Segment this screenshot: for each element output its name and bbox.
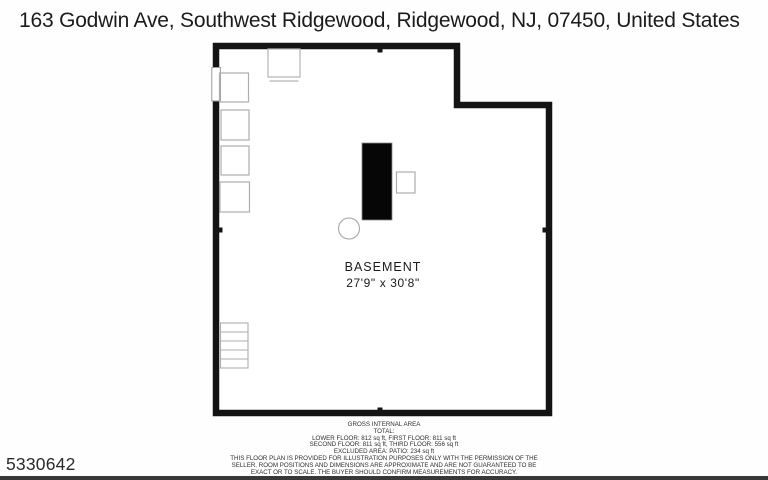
furnace-block (362, 143, 392, 220)
wall-tick-top (378, 49, 383, 53)
floor-plan-page: 163 Godwin Ave, Southwest Ridgewood, Rid… (0, 0, 768, 480)
wall-tick-left (219, 228, 223, 233)
round-tank (339, 218, 360, 239)
room-dimensions-label: 27'9" x 30'8" (346, 276, 420, 290)
listing-id: 5330642 (6, 454, 76, 475)
wall-tick-right (543, 228, 547, 233)
bottom-bar (0, 476, 768, 480)
disclaimer-text: THIS FLOOR PLAN IS PROVIDED FOR ILLUSTRA… (226, 456, 542, 476)
wall-tick-bottom (378, 408, 383, 412)
area-summary-block: GROSS INTERNAL AREA TOTAL: LOWER FLOOR: … (0, 422, 768, 476)
floor-plan-drawing (0, 0, 768, 480)
room-name-label: BASEMENT (345, 260, 422, 274)
basement-walls (216, 46, 549, 413)
utility-box (397, 172, 416, 193)
